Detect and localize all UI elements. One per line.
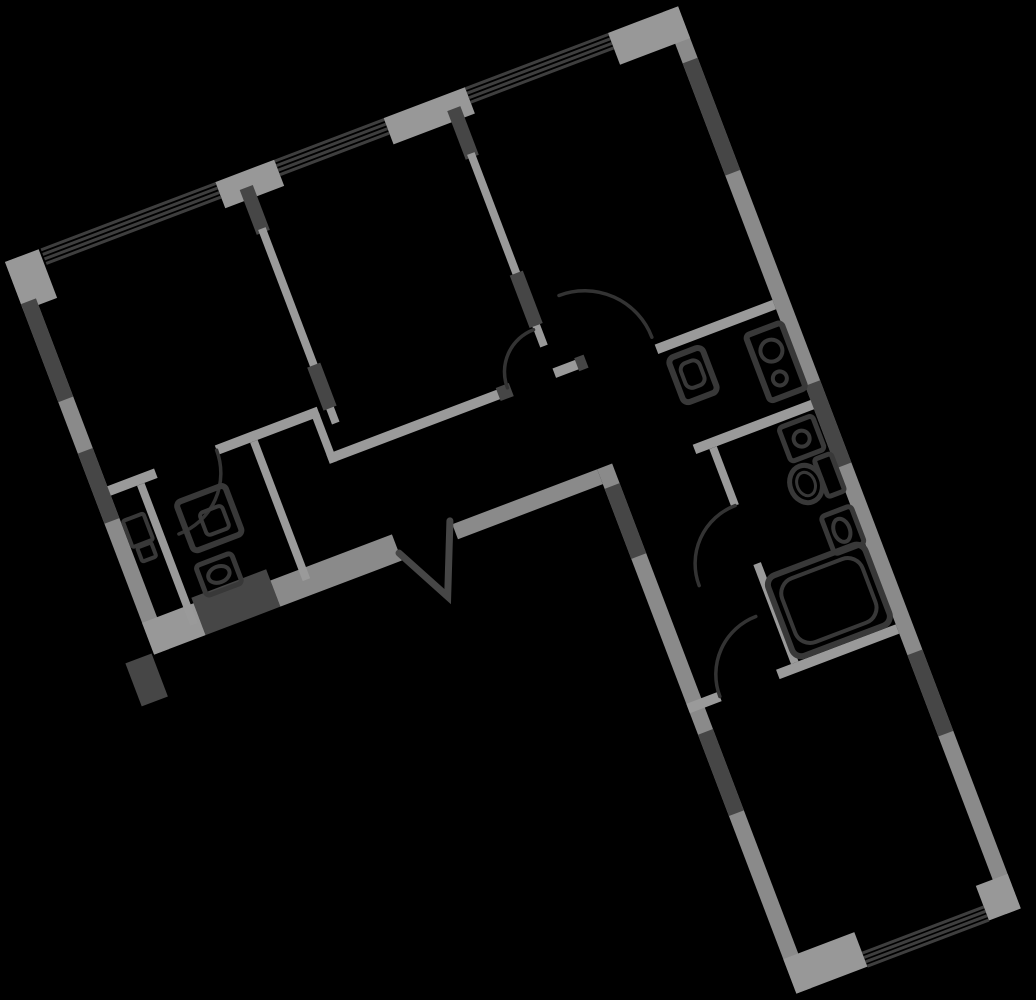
wing-corner-block-sw [783,932,867,994]
window-bottom-glazing-line [866,916,988,962]
window-top-1-glazing-line [41,184,216,250]
wing-west-pier-1 [605,483,647,559]
divider2-dark-top [447,106,479,160]
wc-washer-drum [199,505,230,536]
window-top-2 [275,120,390,175]
outside-stub [125,653,168,706]
toilet-bowl-inner [793,470,818,499]
floor-plan-svg [0,0,1036,1000]
kitchen-sink [668,346,719,404]
divider1-wall [258,227,319,370]
divider1-dark-end [307,363,336,411]
right-wall-pier-3 [907,649,953,736]
wc-east-wall [250,440,310,581]
corner-block-tr [608,6,690,64]
window-top-2-glazing-line [278,129,387,171]
kitchen-sink-basin [679,358,707,389]
wc-sink-bowl [206,563,232,586]
stove-burner-2 [771,369,789,387]
window-top-3 [465,34,613,102]
bath-door-arc [677,506,757,586]
kitchen-north-wall [655,300,776,354]
window-top-1-glazing-line [43,188,218,254]
window-top-3-glazing-line [471,48,614,102]
bath-washer-drum [791,428,812,449]
window-top-2-glazing-line [276,124,385,166]
divider2-dark-end [510,271,543,328]
window-bottom [862,907,988,966]
fixtures-layer [123,277,895,865]
bath-west-wall-n [709,446,738,507]
south-wall-east [452,469,603,539]
bath-washer [778,415,824,461]
room1-south-wall-w [107,469,157,496]
stove-burner-1 [757,336,785,364]
room1-south-wall-e [215,407,320,455]
window-top-3-glazing-line [469,43,612,97]
divider1-tip [326,407,339,425]
wing-west-pier-2 [698,729,744,816]
divider2-wall [467,152,521,276]
window-top-3-glazing-line [467,39,610,93]
floor-plan [0,0,1036,1000]
right-wall-pier-1 [683,58,741,176]
walls-layer [0,6,1021,1000]
toilet-bowl [784,461,827,508]
plan-rotated-group [0,6,1021,1000]
window-top-1-glazing-line [44,193,219,259]
divider2-tip [532,324,547,347]
south-wall-west-dark [191,569,280,635]
window-top-1-glazing-line [46,197,221,263]
kitchen-door-arc [559,270,652,363]
shaft-duct-inner [137,542,156,561]
hall-north-wall [326,389,502,464]
bath-sink-bowl [830,516,853,544]
window-top-1 [41,184,221,264]
left-wall-pier-1 [21,298,73,402]
bedroom3-door-arc [698,616,778,696]
wc-washer [176,485,243,552]
window-bottom-glazing-line [864,911,986,957]
window-top-3-glazing-line [465,34,608,88]
doors-layer [148,263,797,855]
